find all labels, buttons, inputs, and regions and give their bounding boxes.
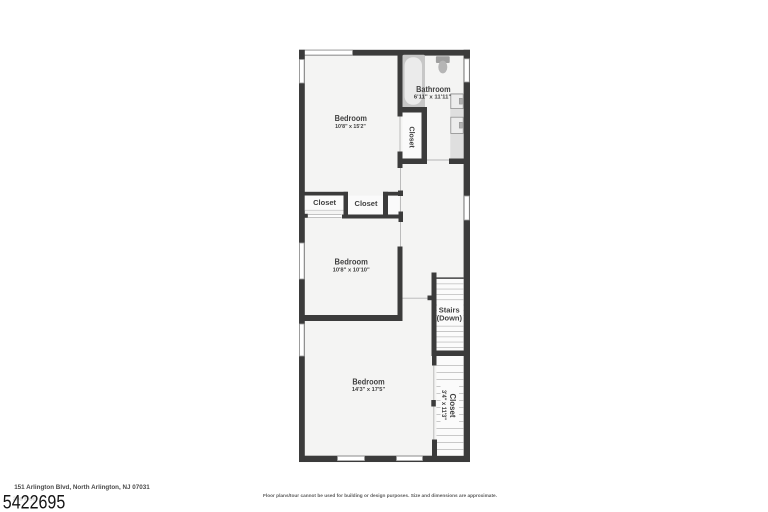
svg-text:Bathroom: Bathroom: [416, 84, 451, 94]
svg-text:Closet: Closet: [448, 394, 458, 418]
svg-text:(Down): (Down): [437, 313, 463, 322]
svg-text:3'4" x 11'3": 3'4" x 11'3": [440, 390, 446, 420]
svg-text:5422695: 5422695: [3, 492, 66, 512]
svg-text:Closet: Closet: [355, 199, 378, 208]
svg-text:10'8" x 15'2": 10'8" x 15'2": [335, 124, 366, 130]
svg-text:Floor plans/tour cannot be use: Floor plans/tour cannot be used for buil…: [263, 493, 497, 498]
svg-text:14'3" x 17'5": 14'3" x 17'5": [352, 387, 386, 393]
svg-text:Bedroom: Bedroom: [335, 113, 368, 123]
svg-text:Bedroom: Bedroom: [335, 257, 369, 267]
svg-text:6'11" x 11'11": 6'11" x 11'11": [414, 95, 452, 101]
svg-text:Closet: Closet: [313, 198, 336, 207]
svg-text:151 Arlington Blvd, North Arli: 151 Arlington Blvd, North Arlington, NJ …: [14, 484, 150, 491]
svg-text:10'8" x 10'10": 10'8" x 10'10": [333, 268, 370, 274]
svg-text:Closet: Closet: [408, 127, 417, 149]
svg-text:Bedroom: Bedroom: [352, 377, 385, 387]
